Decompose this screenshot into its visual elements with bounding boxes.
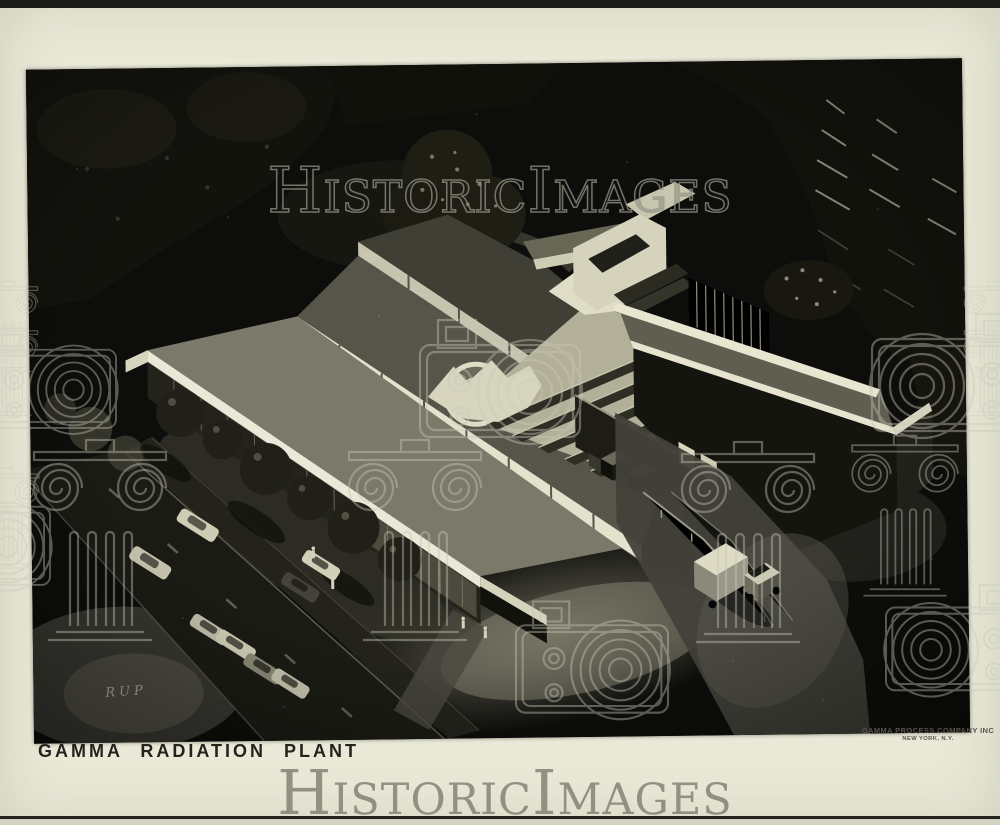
photo-caption: GAMMA RADIATION PLANT [38,741,359,762]
stamp-company-line: GAMMA PROCESS COMPANY INC [858,726,998,735]
vignette [26,58,970,743]
photograph: RUP [26,58,970,743]
agency-stamp: GAMMA PROCESS COMPANY INC NEW YORK, N.Y. [858,726,998,742]
plant-rendering-scene: RUP [26,58,970,743]
column-watermark-icon [964,325,1000,415]
column-watermark-icon [964,281,1000,371]
scan-edge-bottom [0,819,1000,825]
press-photo-mount: RUP [0,0,1000,825]
historicimages-watermark-bottom: HistoricImages [277,756,732,825]
scan-edge-top [0,0,1000,8]
stamp-city-line: NEW YORK, N.Y. [858,736,998,742]
